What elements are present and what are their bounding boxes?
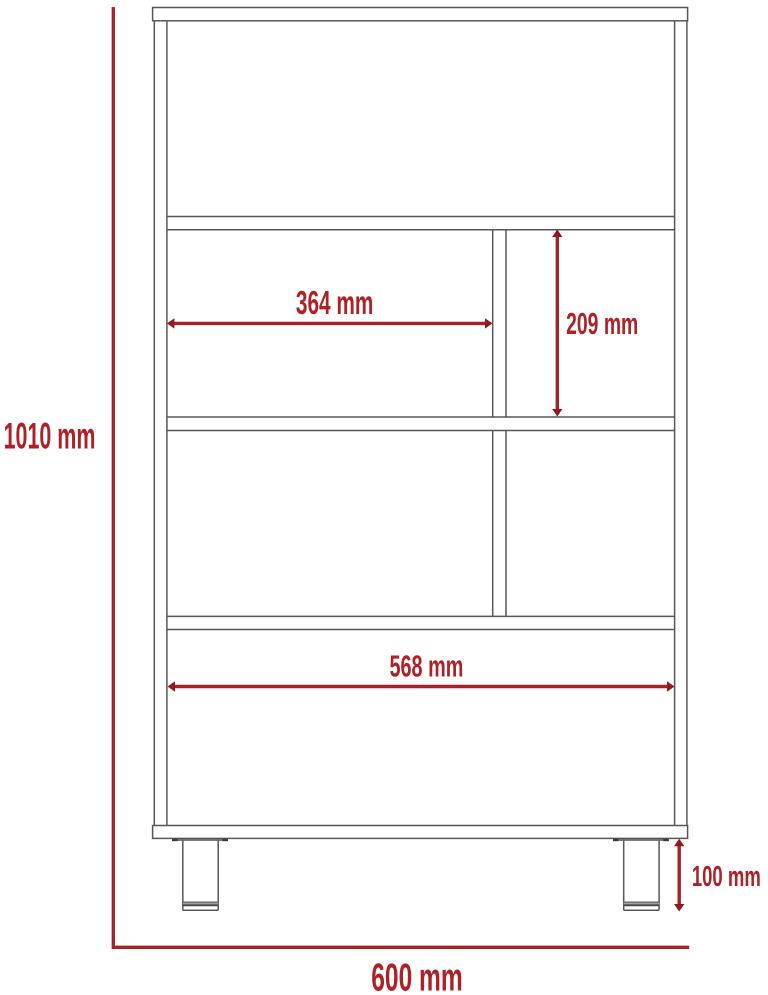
svg-text:1010 mm: 1010 mm bbox=[4, 417, 96, 457]
svg-text:364 mm: 364 mm bbox=[296, 284, 373, 321]
svg-text:568 mm: 568 mm bbox=[389, 648, 463, 684]
svg-text:600 mm: 600 mm bbox=[371, 955, 462, 995]
svg-text:209 mm: 209 mm bbox=[566, 308, 638, 342]
svg-text:100 mm: 100 mm bbox=[692, 861, 761, 893]
